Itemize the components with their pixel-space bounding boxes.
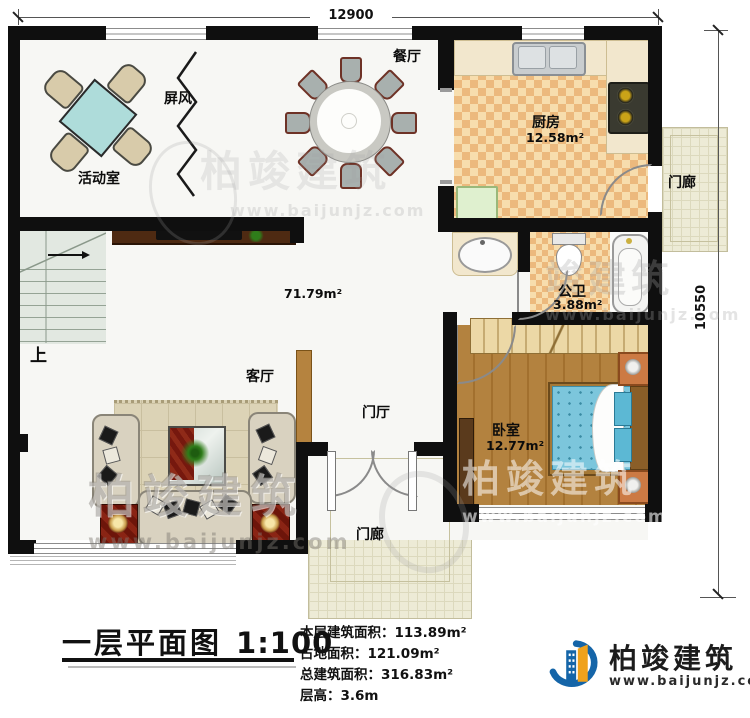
wall bbox=[443, 504, 479, 522]
room-area-bedroom: 12.77m² bbox=[486, 438, 544, 453]
room-label-bedroom: 卧室 bbox=[492, 420, 520, 440]
nightstand-lamp bbox=[625, 477, 641, 493]
chair bbox=[285, 112, 311, 134]
window-sill bbox=[10, 556, 236, 567]
room-label-screen: 屏风 bbox=[164, 88, 192, 108]
stat-row: 总建筑面积：316.83m² bbox=[300, 665, 467, 686]
stat-label: 占地面积： bbox=[300, 646, 368, 662]
wall bbox=[8, 217, 304, 231]
faucet bbox=[480, 240, 485, 245]
dimension-height: 10550 bbox=[694, 282, 709, 333]
stat-label: 本层建筑面积： bbox=[300, 625, 395, 641]
burner bbox=[617, 87, 634, 104]
title-underline-2 bbox=[68, 666, 296, 668]
room-label-dining: 餐厅 bbox=[393, 46, 421, 66]
dimension-extension bbox=[700, 597, 736, 598]
wall-pier bbox=[290, 217, 304, 243]
window bbox=[106, 28, 206, 40]
bed-pillow bbox=[614, 392, 632, 426]
stat-row: 层高：3.6m bbox=[300, 686, 467, 707]
wall bbox=[648, 26, 662, 166]
sink-basin bbox=[549, 46, 577, 69]
dining-table-center bbox=[341, 113, 357, 129]
stat-value: 316.83m² bbox=[381, 667, 453, 683]
wall bbox=[414, 442, 446, 456]
room-area-bath: 3.88m² bbox=[553, 297, 602, 312]
stairs-up-label: 上 bbox=[30, 341, 47, 366]
stair-lines bbox=[18, 231, 106, 344]
dresser bbox=[459, 418, 474, 505]
wall bbox=[412, 26, 522, 40]
company-logo: 柏竣建筑 www.baijunjz.com bbox=[543, 638, 750, 694]
wall bbox=[438, 218, 662, 232]
table-lamp bbox=[108, 513, 128, 533]
stats-block: 本层建筑面积：113.89m² 占地面积：121.09m² 总建筑面积：316.… bbox=[300, 623, 467, 707]
dimension-width: 12900 bbox=[310, 8, 392, 23]
chair bbox=[340, 163, 362, 189]
room-label-kitchen: 厨房 bbox=[532, 112, 560, 132]
wall bbox=[438, 26, 454, 90]
folding-screen bbox=[172, 50, 206, 198]
stat-label: 层高： bbox=[300, 688, 341, 704]
wall bbox=[8, 540, 36, 554]
vanity-sink bbox=[458, 237, 512, 273]
open-area-label: 71.79m² bbox=[284, 286, 342, 301]
stat-value: 121.09m² bbox=[368, 646, 440, 662]
room-label-activity: 活动室 bbox=[78, 168, 120, 188]
french-door-left-leaf bbox=[327, 451, 336, 511]
title-underline bbox=[62, 658, 294, 662]
stat-row: 占地面积：121.09m² bbox=[300, 644, 467, 665]
door-jamb bbox=[440, 88, 452, 92]
logo-name: 柏竣建筑 bbox=[609, 644, 750, 674]
room-label-foyer: 门厅 bbox=[362, 402, 390, 422]
french-door-right-leaf bbox=[408, 451, 417, 511]
room-label-porch-bottom: 门廊 bbox=[356, 524, 384, 544]
wall bbox=[645, 504, 662, 522]
logo-text: 柏竣建筑 www.baijunjz.com bbox=[609, 644, 750, 689]
bed-headboard bbox=[630, 386, 650, 470]
nightstand-lamp bbox=[625, 359, 641, 375]
room-area-kitchen: 12.58m² bbox=[526, 130, 584, 145]
wall bbox=[648, 312, 662, 522]
bathtub-inner bbox=[618, 248, 642, 306]
logo-website: www.baijunjz.com bbox=[609, 674, 750, 689]
wall bbox=[296, 442, 308, 554]
table-lamp bbox=[260, 513, 280, 533]
wood-partition bbox=[296, 350, 312, 444]
logo-icon bbox=[543, 638, 601, 694]
tv bbox=[156, 230, 242, 240]
stat-row: 本层建筑面积：113.89m² bbox=[300, 623, 467, 644]
door-jamb bbox=[440, 180, 452, 184]
sink-basin bbox=[518, 46, 546, 69]
window bbox=[318, 28, 412, 40]
wall bbox=[443, 312, 457, 522]
wall bbox=[648, 232, 662, 312]
room-label-porch-right: 门廊 bbox=[668, 172, 696, 192]
stat-label: 总建筑面积： bbox=[300, 667, 381, 683]
wall bbox=[8, 26, 20, 554]
chair bbox=[340, 57, 362, 83]
wall-pier bbox=[20, 434, 28, 452]
chair bbox=[391, 112, 417, 134]
wall bbox=[8, 26, 106, 40]
plan-title-text: 一层平面图 bbox=[62, 626, 222, 660]
plant bbox=[181, 439, 209, 467]
wall bbox=[206, 26, 318, 40]
wall bbox=[236, 540, 308, 554]
burner bbox=[617, 109, 634, 126]
window bbox=[479, 507, 645, 520]
bed-pillow bbox=[614, 428, 632, 462]
plan-title: 一层平面图1:100 bbox=[62, 620, 333, 662]
room-label-living: 客厅 bbox=[246, 366, 274, 386]
bathtub-faucet bbox=[626, 238, 632, 244]
window bbox=[34, 543, 236, 554]
wall bbox=[518, 232, 530, 272]
dimension-line-right bbox=[718, 30, 719, 594]
window bbox=[522, 28, 584, 40]
stat-value: 3.6m bbox=[341, 688, 379, 704]
floor-plan: 12900 10550 柏竣建筑 www.baijunjz.com 柏竣建筑 w… bbox=[0, 0, 750, 718]
stat-value: 113.89m² bbox=[395, 625, 467, 641]
